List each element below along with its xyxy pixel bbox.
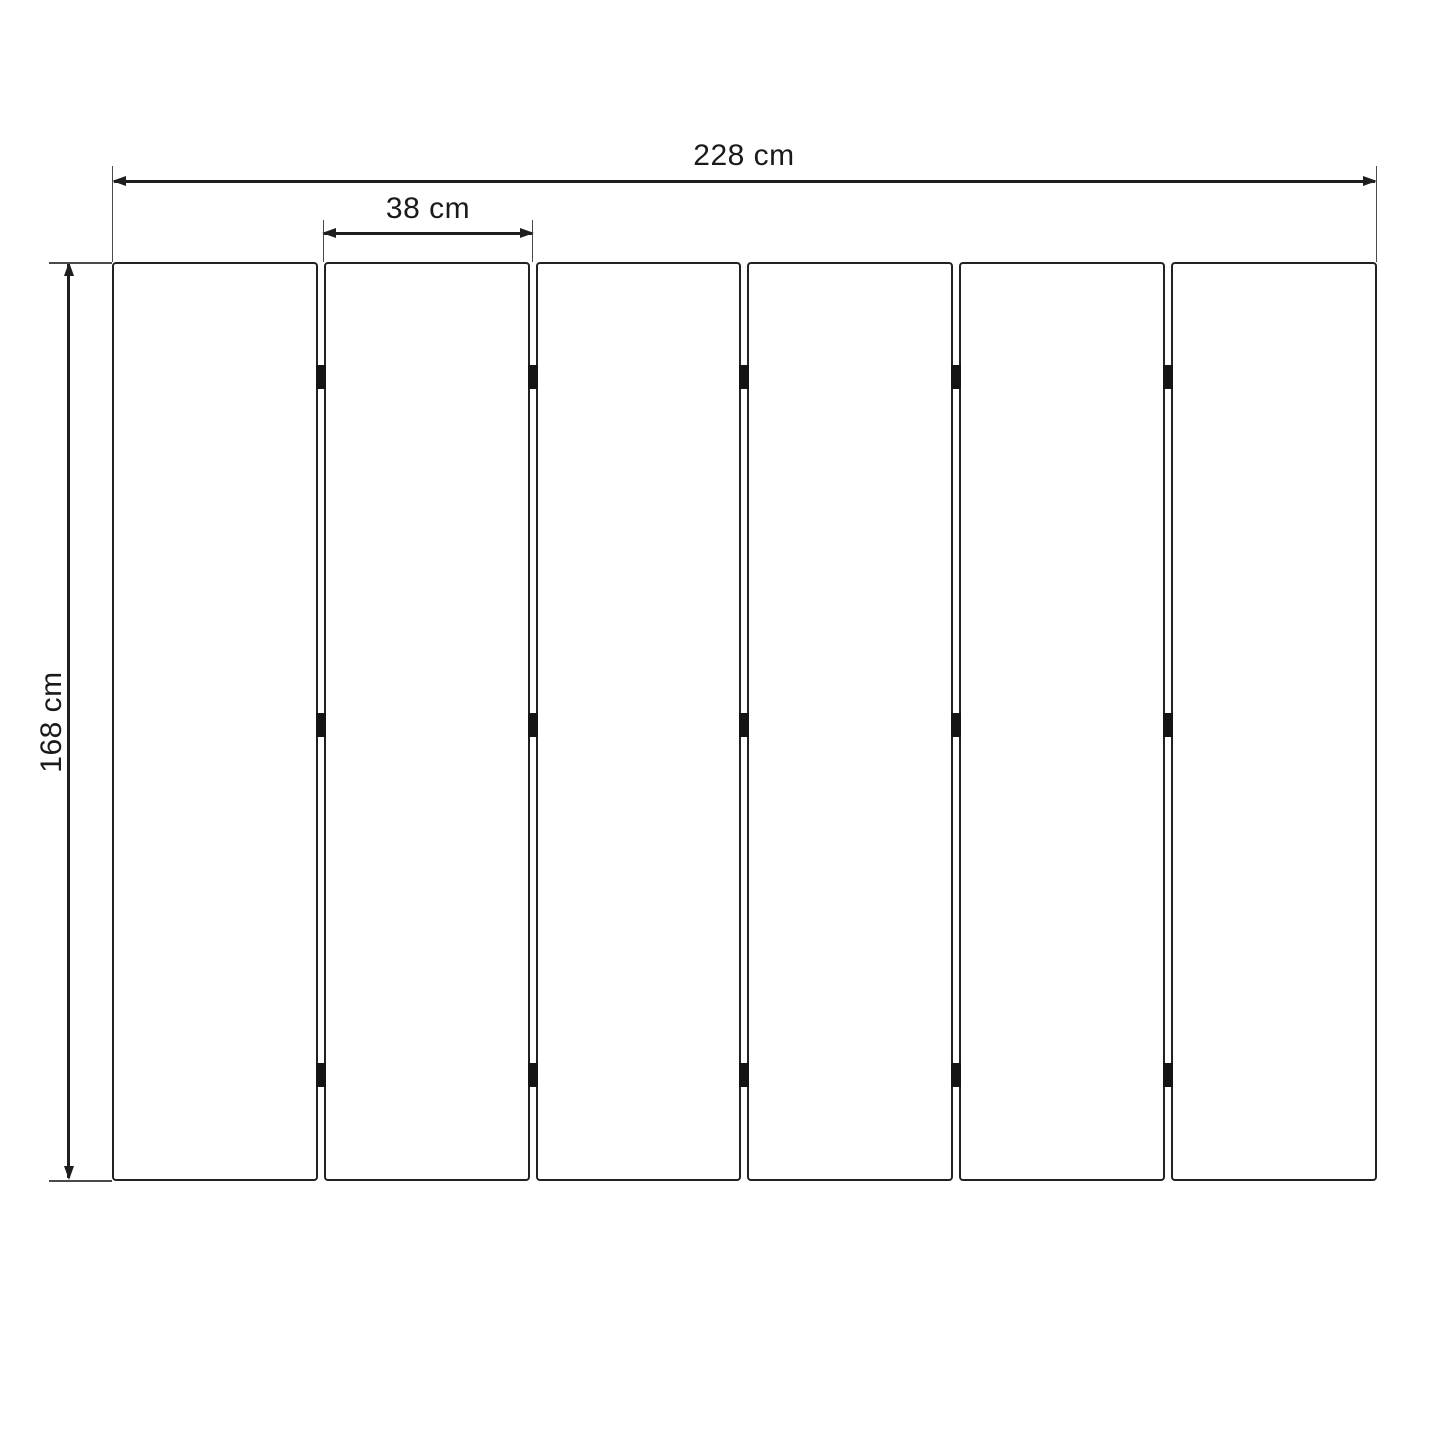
hinge-gap2-row3 [528,1063,538,1087]
panel-3 [536,262,742,1181]
panel-width-dimension-line [324,232,532,235]
height-dimension-line [67,264,70,1178]
hinge-gap5-row2 [1163,713,1173,737]
panel-2 [324,262,530,1181]
arrowhead-down-icon [64,1166,74,1180]
hinge-gap4-row3 [951,1063,961,1087]
extension-line-height-bottom [49,1180,112,1182]
hinge-gap3-row3 [739,1063,749,1087]
arrowhead-up-icon [64,262,74,276]
hinge-gap3-row1 [739,365,749,389]
panel-4 [747,262,953,1181]
hinge-gap4-row2 [951,713,961,737]
hinge-gap1-row1 [316,365,326,389]
panel-width-label: 38 cm [328,194,528,224]
hinge-gap5-row3 [1163,1063,1173,1087]
panel-1 [112,262,318,1181]
hinge-gap1-row2 [316,713,326,737]
extension-line-left-top [112,166,114,262]
extension-line-panel-left [323,220,325,262]
hinge-gap5-row1 [1163,365,1173,389]
hinge-gap2-row2 [528,713,538,737]
hinge-gap1-row3 [316,1063,326,1087]
arrowhead-left-icon [322,228,336,238]
hinge-gap2-row1 [528,365,538,389]
panel-5 [959,262,1165,1181]
total-width-dimension-line [114,180,1375,183]
panel-6 [1171,262,1377,1181]
hinge-gap4-row1 [951,365,961,389]
dimension-drawing: 228 cm 38 cm 168 cm [0,0,1445,1445]
extension-line-panel-right [532,220,534,262]
total-width-label: 228 cm [644,141,844,171]
extension-line-height-top [49,262,112,264]
height-label: 168 cm [37,657,67,787]
hinge-gap3-row2 [739,713,749,737]
extension-line-right-top [1376,166,1378,262]
arrowhead-left-icon [112,176,126,186]
